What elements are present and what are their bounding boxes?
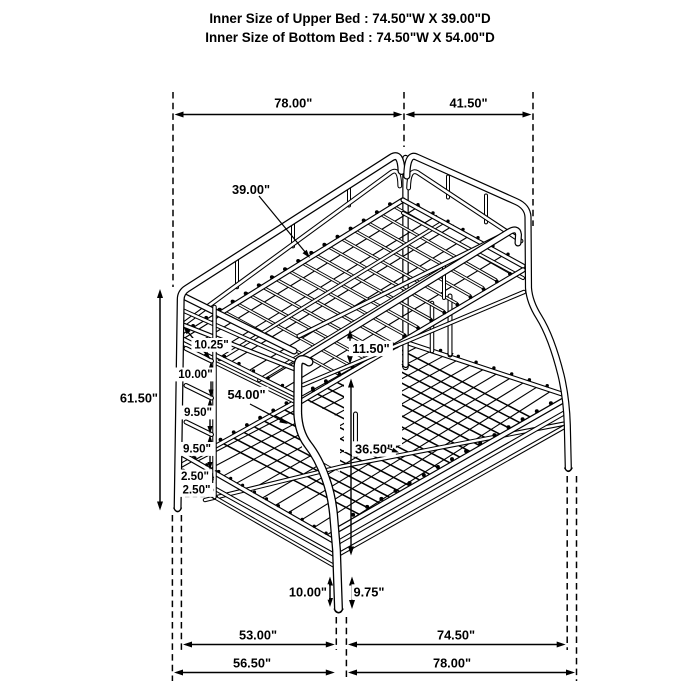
svg-text:39.00": 39.00" xyxy=(232,182,270,197)
svg-text:41.50": 41.50" xyxy=(449,96,487,111)
svg-text:36.50": 36.50" xyxy=(355,442,393,457)
svg-text:9.50": 9.50" xyxy=(184,406,212,419)
svg-text:9.50": 9.50" xyxy=(183,443,211,456)
svg-text:53.00": 53.00" xyxy=(239,628,277,643)
svg-text:78.00": 78.00" xyxy=(274,96,312,111)
svg-text:74.50": 74.50" xyxy=(437,628,475,643)
svg-text:56.50": 56.50" xyxy=(233,656,271,671)
svg-text:10.25": 10.25" xyxy=(194,339,229,352)
svg-text:Inner Size of Bottom Bed : 74.: Inner Size of Bottom Bed : 74.50"W X 54.… xyxy=(205,30,495,45)
svg-text:Inner Size of Upper Bed : 74.5: Inner Size of Upper Bed : 74.50"W X 39.0… xyxy=(209,11,491,26)
svg-text:61.50": 61.50" xyxy=(120,391,158,406)
svg-text:11.50": 11.50" xyxy=(352,341,389,356)
svg-text:2.50": 2.50" xyxy=(182,484,210,497)
svg-text:10.00": 10.00" xyxy=(289,585,327,600)
svg-text:9.75": 9.75" xyxy=(354,585,385,600)
svg-text:54.00": 54.00" xyxy=(227,387,265,402)
svg-text:2.50": 2.50" xyxy=(181,470,209,483)
svg-text:78.00": 78.00" xyxy=(433,656,471,671)
svg-text:10.00": 10.00" xyxy=(178,368,213,381)
